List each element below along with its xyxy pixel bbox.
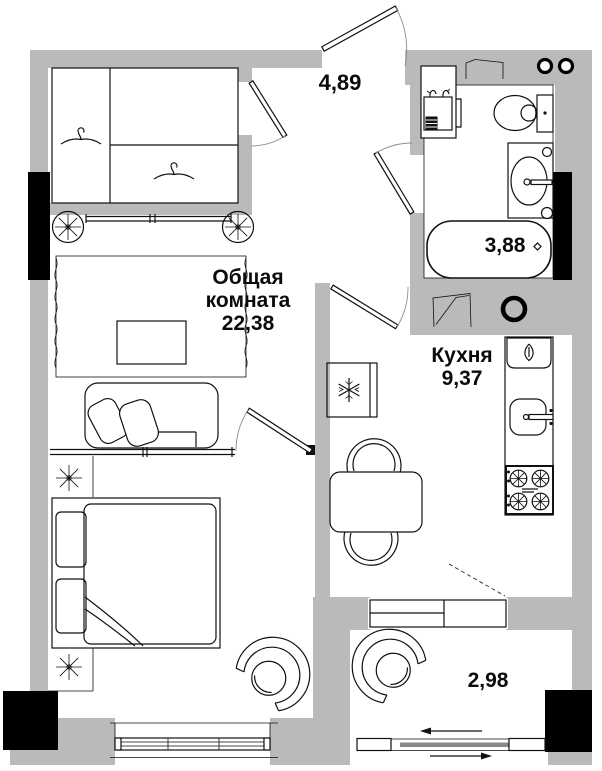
snowflake-icon: [339, 378, 360, 402]
washbasin-icon: [508, 143, 553, 219]
roller-wheel-icon: [223, 212, 254, 243]
balcony-area-label: 2,98: [438, 669, 538, 692]
dining-set-icon: [330, 439, 422, 566]
bathroom-area-label: 3,88: [455, 234, 555, 257]
balcony-door-swing: [449, 564, 505, 596]
double-bed-icon: [52, 498, 220, 648]
kitchen-label: Кухня 9,37: [405, 344, 519, 390]
sliding-window-icon: [357, 728, 545, 760]
wardrobe: [52, 68, 254, 243]
bathroom-door-icon: [374, 143, 414, 214]
kitchen-area: 9,37: [405, 367, 519, 390]
plant-icon: [56, 465, 82, 491]
plant-icon: [56, 654, 82, 680]
living-room-name-line2: комната: [170, 289, 326, 312]
balcony-block: [368, 598, 508, 629]
living-room-label: Общая комната 22,38: [170, 266, 326, 335]
pipe-riser-icon: [539, 60, 552, 73]
kitchen-door-icon: [331, 285, 408, 329]
hanger-icon: [154, 163, 194, 179]
vent-shaft: [433, 294, 525, 328]
armchair-icon: [231, 622, 326, 717]
roller-wheel-icon: [53, 212, 84, 243]
niche-lines: [48, 456, 93, 691]
fridge-icon: [327, 363, 377, 417]
wall-sketch: [466, 60, 503, 80]
ventilation-icon: [503, 298, 525, 320]
living-room-area: 22,38: [170, 312, 326, 335]
pipe-riser-icon: [560, 60, 573, 73]
kitchen-name: Кухня: [405, 344, 519, 367]
entrance-door-icon: [322, 6, 407, 66]
hallway-area-label: 4,89: [296, 71, 384, 94]
living-room-name-line1: Общая: [170, 266, 326, 289]
sofa-icon: [85, 383, 218, 449]
wardrobe-door-icon: [249, 81, 287, 146]
window-icon: [110, 723, 278, 758]
hanger-icon: [61, 128, 101, 144]
floor-plan: Общая комната 22,38 Кухня 9,37 4,89 3,88…: [0, 0, 602, 771]
toilet-icon: [494, 95, 553, 132]
